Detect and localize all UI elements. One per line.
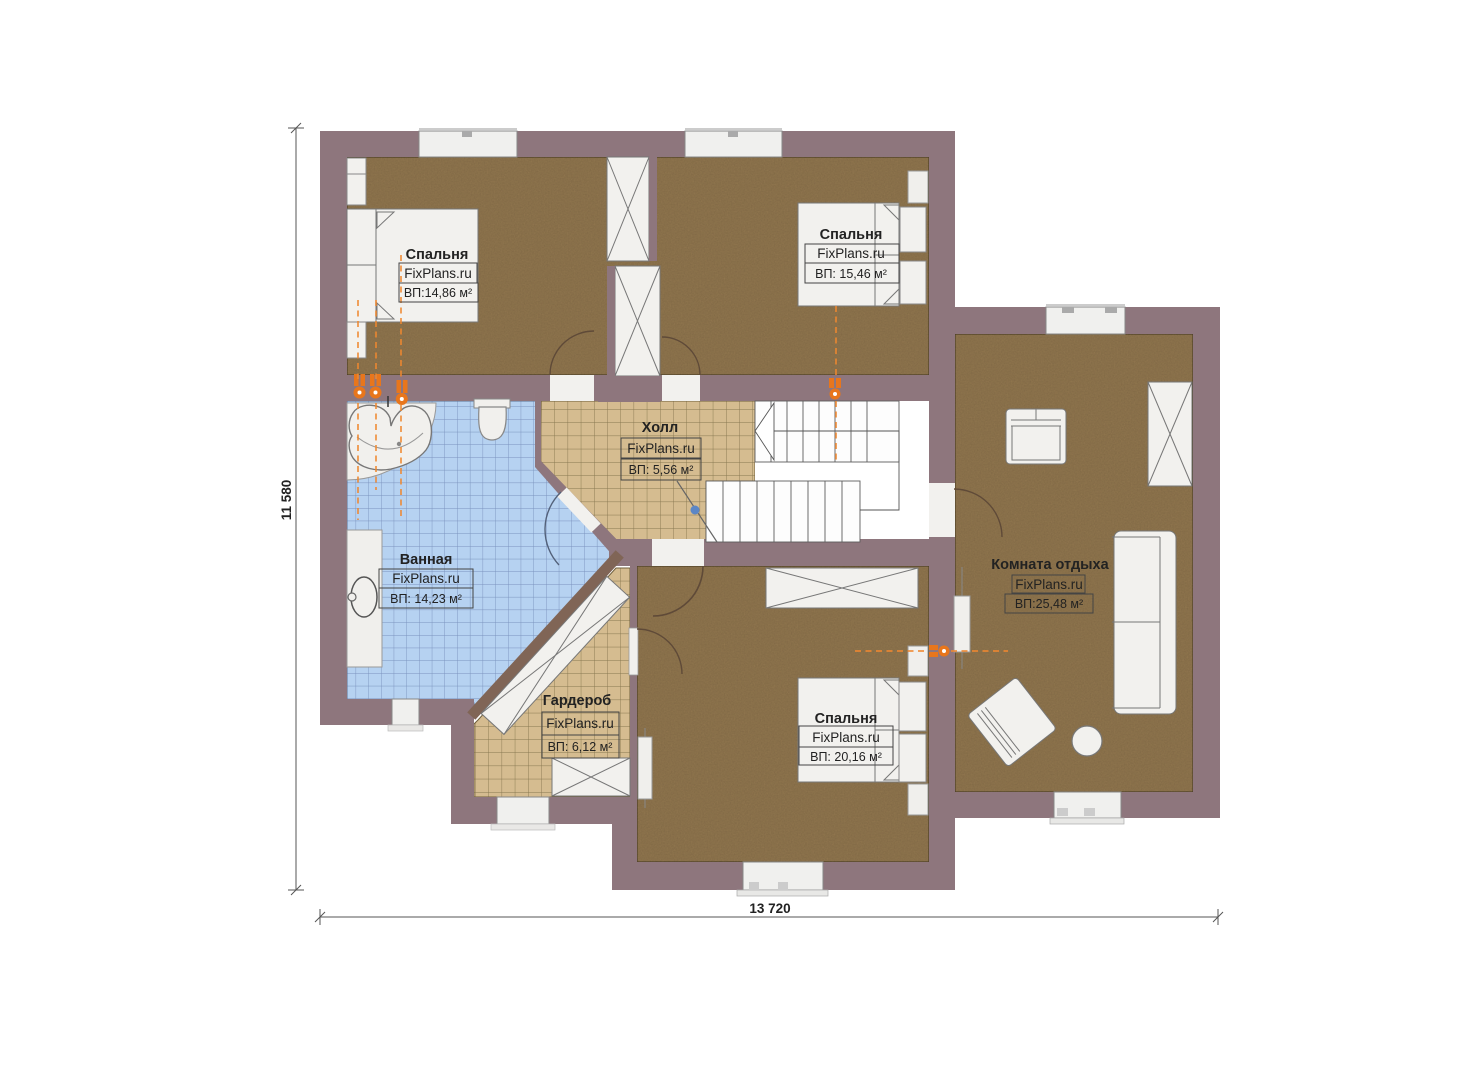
svg-text:Гардероб: Гардероб	[543, 693, 612, 709]
svg-text:13 720: 13 720	[749, 901, 790, 916]
svg-text:FixPlans.ru: FixPlans.ru	[627, 441, 695, 456]
svg-text:Спальня: Спальня	[820, 227, 883, 243]
svg-text:ВП: 5,56 м²: ВП: 5,56 м²	[629, 463, 694, 477]
svg-text:FixPlans.ru: FixPlans.ru	[1015, 577, 1083, 592]
svg-text:FixPlans.ru: FixPlans.ru	[404, 266, 472, 281]
svg-text:FixPlans.ru: FixPlans.ru	[392, 571, 460, 586]
svg-text:Спальня: Спальня	[815, 711, 878, 727]
svg-text:FixPlans.ru: FixPlans.ru	[812, 730, 880, 745]
svg-text:ВП:14,86 м²: ВП:14,86 м²	[404, 286, 472, 300]
svg-text:Холл: Холл	[642, 420, 678, 436]
svg-text:ВП:25,48 м²: ВП:25,48 м²	[1015, 597, 1083, 611]
svg-text:Спальня: Спальня	[406, 247, 469, 263]
svg-text:FixPlans.ru: FixPlans.ru	[817, 246, 885, 261]
svg-text:ВП: 6,12 м²: ВП: 6,12 м²	[548, 740, 613, 754]
svg-text:ВП: 20,16 м²: ВП: 20,16 м²	[810, 750, 882, 764]
svg-text:Ванная: Ванная	[400, 552, 453, 568]
svg-text:FixPlans.ru: FixPlans.ru	[546, 716, 614, 731]
svg-text:ВП: 14,23 м²: ВП: 14,23 м²	[390, 592, 462, 606]
svg-text:ВП: 15,46 м²: ВП: 15,46 м²	[815, 267, 887, 281]
svg-text:11 580: 11 580	[279, 480, 294, 521]
svg-text:Комната отдыха: Комната отдыха	[991, 557, 1109, 573]
